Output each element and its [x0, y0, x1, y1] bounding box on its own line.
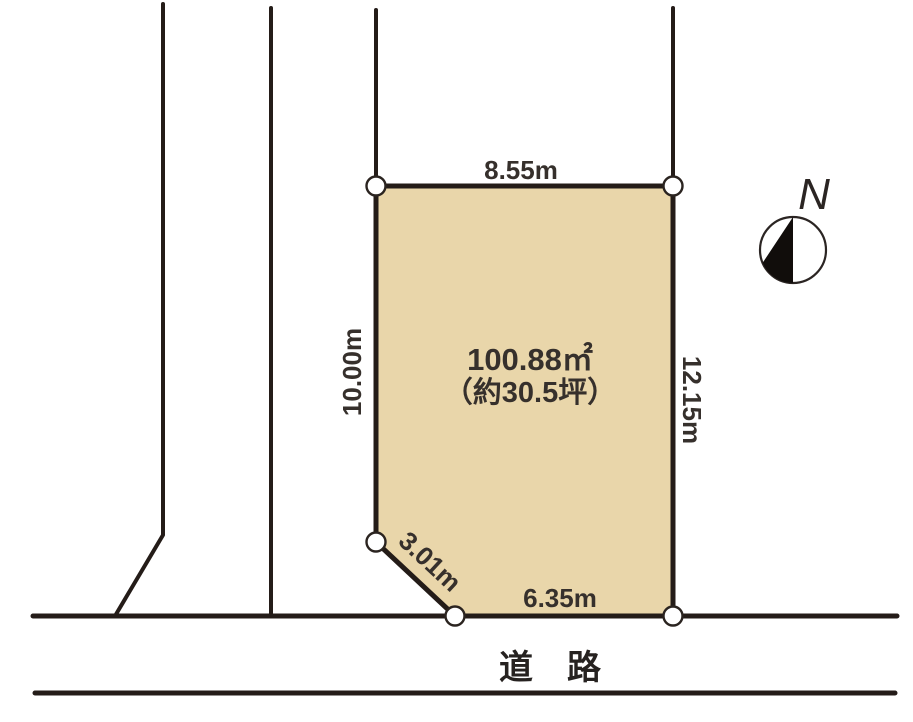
parcel-area-label: 100.88㎡ — [467, 342, 593, 377]
neighbor-boundary-line-1 — [115, 4, 163, 616]
north-label: N — [798, 170, 830, 219]
dimension-label-right: 12.15m — [677, 356, 707, 444]
vertex-marker-bottom-right — [664, 607, 683, 626]
plot-drawing: 8.55m 10.00m 12.15m 3.01m 6.35m 100.88㎡ … — [0, 0, 913, 722]
dimension-label-bottom: 6.35m — [523, 583, 597, 613]
parcel-area-tsubo-label: （約30.5坪） — [444, 375, 616, 409]
vertex-marker-top-left — [367, 177, 386, 196]
vertex-marker-cut-lower — [446, 607, 465, 626]
dimension-label-top: 8.55m — [484, 155, 558, 185]
land-plot-diagram: 8.55m 10.00m 12.15m 3.01m 6.35m 100.88㎡ … — [0, 0, 913, 722]
dimension-label-left: 10.00m — [337, 328, 367, 416]
road-label: 道 路 — [499, 649, 602, 687]
vertex-marker-cut-upper — [367, 533, 386, 552]
north-compass: N — [760, 170, 830, 283]
vertex-marker-top-right — [664, 177, 683, 196]
